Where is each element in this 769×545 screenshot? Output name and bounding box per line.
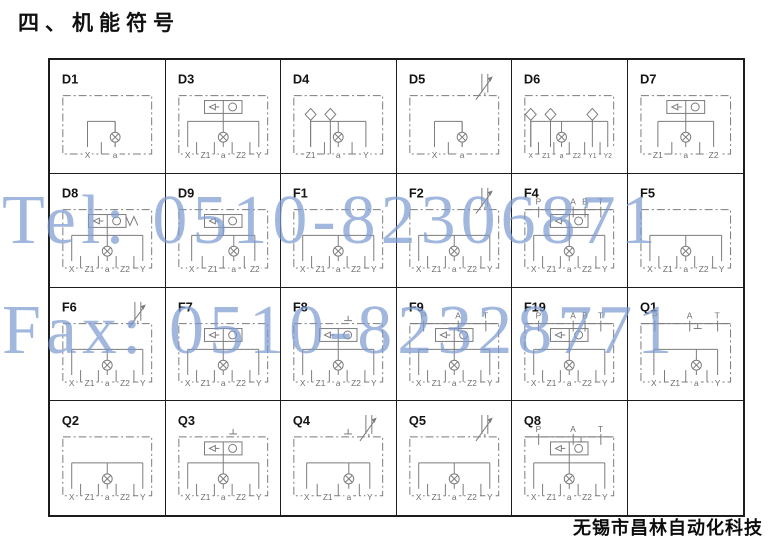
bottom-port-label: Z2 — [249, 264, 259, 274]
bottom-port-label: Z2 — [467, 377, 477, 387]
symbol-cell-D6: D6XZ1aZ2Y1Y2 — [512, 60, 628, 174]
pilot-valve-icon — [319, 328, 357, 349]
schematic-Q2: Q2XZ1aZ2Y — [50, 401, 165, 515]
bottom-port-label: X — [69, 377, 75, 387]
symbol-cell-F7: F7XZ1aZ2Y — [166, 288, 282, 402]
bottom-port-label: Y — [367, 492, 373, 502]
bottom-port-label: a — [336, 377, 341, 387]
symbol-cell-D4: D4Z1aY — [281, 60, 397, 174]
blocked-port-icon — [577, 437, 585, 442]
top-port-label: A — [570, 196, 576, 206]
pilot-valve-icon — [204, 442, 242, 463]
pilot-valve-icon — [88, 214, 137, 235]
schematic-Q8: Q8PATXZ1aZ2Y — [512, 401, 627, 515]
bottom-port-label: Y — [602, 377, 608, 387]
bottom-port-label: X — [531, 377, 537, 387]
bottom-port-label: X — [531, 492, 537, 502]
cell-label: D1 — [62, 72, 78, 87]
bottom-port-label: Z2 — [467, 492, 477, 502]
bottom-port-label: Z1 — [652, 150, 662, 160]
schematic-F4: F4PABTXZ1aZ2Y — [512, 174, 627, 287]
bottom-port-label: X — [415, 492, 421, 502]
bottom-port-label: a — [694, 377, 699, 387]
blocked-port-icon — [344, 429, 352, 434]
symbol-cell-D5: D5Xa — [397, 60, 513, 174]
bottom-port-label: X — [184, 150, 190, 160]
blocked-port-icon — [229, 429, 237, 434]
top-port-label: P — [536, 310, 542, 320]
symbol-cell-Q5: Q5XZ1aZ2Y — [397, 401, 513, 515]
top-port-label: T — [598, 196, 603, 206]
top-port-label: A — [686, 310, 692, 320]
top-port-label: P — [536, 196, 542, 206]
schematic-F2: F2XZ1aZ2Y — [397, 174, 512, 287]
cell-label: F8 — [293, 299, 308, 314]
bottom-port-label: a — [220, 377, 225, 387]
top-port-label: B — [582, 310, 588, 320]
symbol-cell-F5: F5XZ1aZ2Y — [628, 174, 744, 288]
schematic-D8: D8XZ1aZ2Y — [50, 174, 165, 287]
bottom-port-label: Y — [718, 264, 724, 274]
cell-label: D8 — [62, 185, 78, 200]
schematic-D7: D7Z1aZ2 — [628, 60, 744, 173]
symbol-cell-Q1: Q1PATXZ1aY — [628, 288, 744, 402]
bottom-port-label: Y2 — [604, 153, 613, 160]
cell-label: Q5 — [408, 413, 425, 428]
bottom-port-label: Z1 — [200, 150, 210, 160]
schematic-D5: D5Xa — [397, 60, 512, 173]
top-port-label: T — [482, 310, 487, 320]
bottom-port-label: X — [85, 150, 91, 160]
symbol-cell-D8: D8XZ1aZ2Y — [50, 174, 166, 288]
symbol-cell-F4: F4PABTXZ1aZ2Y — [512, 174, 628, 288]
bottom-port-label: Y — [714, 377, 720, 387]
cell-label: Q2 — [62, 413, 79, 428]
symbol-cell-F1: F1XZ1aZ2Y — [281, 174, 397, 288]
top-port-label: T — [714, 310, 719, 320]
schematic-Q3: Q3XZ1aZ2Y — [166, 401, 281, 515]
bottom-port-label: X — [415, 264, 421, 274]
schematic-F8: F8XZ1aZ2Y — [281, 288, 396, 401]
bottom-port-label: Z1 — [200, 492, 210, 502]
bottom-port-label: Y — [486, 377, 492, 387]
pilot-valve-icon — [550, 214, 588, 235]
symbol-cell-F19: F19PABTXZ1aZ2Y — [512, 288, 628, 402]
bottom-port-label: Z2 — [236, 150, 246, 160]
bottom-port-label: Z1 — [200, 377, 210, 387]
pilot-valve-icon — [550, 328, 588, 349]
bottom-port-label: Y — [371, 264, 377, 274]
bottom-port-label: Z1 — [542, 153, 550, 160]
bottom-port-label: Y — [140, 377, 146, 387]
bottom-port-label: a — [105, 377, 110, 387]
symbol-cell-Q8: Q8PATXZ1aZ2Y — [512, 401, 628, 515]
blocked-port-icon — [581, 209, 589, 214]
schematic-D4: D4Z1aY — [281, 60, 396, 173]
bottom-port-label: X — [69, 492, 75, 502]
bottom-port-label: Z2 — [708, 150, 718, 160]
bottom-port-label: Z1 — [662, 264, 672, 274]
bottom-port-label: Z1 — [670, 377, 680, 387]
bottom-port-label: X — [188, 264, 194, 274]
bottom-port-label: a — [105, 264, 110, 274]
top-port-label: T — [598, 310, 603, 320]
check-valve-icon — [545, 108, 556, 120]
company-name: 无锡市昌林自动化科技 — [573, 514, 763, 540]
bottom-port-label: a — [231, 264, 236, 274]
bottom-port-label: X — [184, 377, 190, 387]
bottom-port-label: Y — [363, 150, 369, 160]
cell-label: F7 — [177, 299, 192, 314]
bottom-port-label: Y — [140, 264, 146, 274]
bottom-port-label: a — [567, 377, 572, 387]
bottom-port-label: Z1 — [431, 377, 441, 387]
top-port-label: A — [570, 310, 576, 320]
page-title: 四、机能符号 — [18, 7, 180, 37]
bottom-port-label: a — [451, 492, 456, 502]
schematic-F7: F7XZ1aZ2Y — [166, 288, 281, 401]
bottom-port-label: X — [184, 492, 190, 502]
cell-label: D7 — [639, 72, 656, 87]
pilot-valve-icon — [666, 101, 704, 122]
bottom-port-label: Y — [140, 492, 146, 502]
top-port-label: P — [651, 310, 657, 320]
symbol-cell-D1: D1Xa — [50, 60, 166, 174]
pilot-valve-icon — [204, 101, 242, 122]
top-port-label: T — [598, 424, 603, 434]
bottom-port-label: Z2 — [582, 264, 592, 274]
bottom-port-label: a — [113, 150, 118, 160]
symbol-cell-Q2: Q2XZ1aZ2Y — [50, 401, 166, 515]
bottom-port-label: Z1 — [431, 492, 441, 502]
bottom-port-label: Z1 — [85, 264, 95, 274]
bottom-port-label: Z1 — [547, 492, 557, 502]
schematic-Q1: Q1PATXZ1aY — [628, 288, 744, 401]
bottom-port-label: a — [567, 264, 572, 274]
bottom-port-label: Y — [255, 377, 261, 387]
bottom-port-label: Z1 — [85, 377, 95, 387]
schematic-F5: F5XZ1aZ2Y — [628, 174, 744, 287]
symbol-table: D1XaD3XZ1aZ2YD4Z1aYD5XaD6XZ1aZ2Y1Y2D7Z1a… — [48, 58, 745, 517]
bottom-port-label: Z2 — [467, 264, 477, 274]
bottom-port-label: a — [346, 492, 351, 502]
blocked-port-icon — [693, 323, 701, 328]
bottom-port-label: X — [647, 264, 653, 274]
bottom-port-label: X — [431, 150, 437, 160]
cell-label: Q3 — [177, 413, 194, 428]
bottom-port-label: Y1 — [588, 153, 597, 160]
schematic-F6: F6XZ1aZ2Y — [50, 288, 165, 401]
bottom-port-label: Y — [255, 492, 261, 502]
schematic-D1: D1Xa — [50, 60, 165, 173]
bottom-port-label: a — [683, 264, 688, 274]
bottom-port-label: X — [300, 264, 306, 274]
bottom-port-label: Z2 — [236, 492, 246, 502]
bottom-port-label: Z2 — [698, 264, 708, 274]
bottom-port-label: a — [567, 492, 572, 502]
cell-label: D3 — [177, 72, 193, 87]
cell-label: F6 — [62, 299, 77, 314]
boundary-box — [409, 96, 498, 154]
bottom-port-label: Z1 — [323, 492, 333, 502]
schematic-F9: F9PATXZ1aZ2Y — [397, 288, 512, 401]
bottom-port-label: Z2 — [120, 264, 130, 274]
top-port-label: P — [420, 310, 426, 320]
bottom-port-label: X — [300, 377, 306, 387]
bottom-port-label: Z2 — [236, 377, 246, 387]
catalog-page: 四、机能符号 D1XaD3XZ1aZ2YD4Z1aYD5XaD6XZ1aZ2Y1… — [0, 0, 769, 545]
bottom-port-label: X — [651, 377, 657, 387]
cell-label: D5 — [408, 72, 424, 87]
symbol-cell-D9: D9XZ1aZ2 — [166, 174, 282, 288]
empty-schematic — [628, 401, 744, 515]
bottom-port-label: X — [304, 492, 310, 502]
bottom-port-label: X — [415, 377, 421, 387]
bottom-port-label: a — [336, 264, 341, 274]
symbol-cell-F6: F6XZ1aZ2Y — [50, 288, 166, 402]
bottom-port-label: X — [69, 264, 75, 274]
schematic-D9: D9XZ1aZ2 — [166, 174, 281, 287]
bottom-port-label: Z2 — [351, 377, 361, 387]
bottom-port-label: Y — [371, 377, 377, 387]
symbol-cell-Q4: Q4XZ1aY — [281, 401, 397, 515]
bottom-port-label: a — [683, 150, 688, 160]
bottom-port-label: Y — [486, 264, 492, 274]
bottom-port-label: a — [560, 153, 564, 160]
schematic-F1: F1XZ1aZ2Y — [281, 174, 396, 287]
bottom-port-label: Y — [602, 492, 608, 502]
symbol-cell-F2: F2XZ1aZ2Y — [397, 174, 513, 288]
top-port-label: A — [455, 310, 461, 320]
bottom-port-label: Z2 — [582, 377, 592, 387]
bottom-port-label: Y — [255, 150, 261, 160]
bottom-port-label: X — [531, 264, 537, 274]
bottom-port-label: Z1 — [547, 264, 557, 274]
bottom-port-label: Z2 — [120, 492, 130, 502]
symbol-cell-Q3: Q3XZ1aZ2Y — [166, 401, 282, 515]
bottom-port-label: Z2 — [351, 264, 361, 274]
bottom-port-label: X — [528, 153, 533, 160]
symbol-cell-F8: F8XZ1aZ2Y — [281, 288, 397, 402]
schematic-F19: F19PABTXZ1aZ2Y — [512, 288, 627, 401]
check-valve-icon — [525, 108, 536, 120]
bottom-port-label: Z1 — [207, 264, 217, 274]
bottom-port-label: Z1 — [306, 150, 316, 160]
pilot-valve-icon — [550, 442, 588, 463]
blocked-port-icon — [344, 315, 352, 320]
top-port-label: B — [582, 196, 588, 206]
cell-label: D4 — [293, 72, 310, 87]
schematic-Q4: Q4XZ1aY — [281, 401, 396, 515]
symbol-cell-empty — [628, 401, 744, 515]
cell-label: D6 — [524, 72, 540, 87]
pilot-valve-icon — [204, 328, 242, 349]
pilot-valve-icon — [435, 328, 473, 349]
top-port-label: A — [570, 424, 576, 434]
symbol-cell-D7: D7Z1aZ2 — [628, 60, 744, 174]
bottom-port-label: a — [451, 264, 456, 274]
bottom-port-label: Z2 — [582, 492, 592, 502]
bottom-port-label: Y — [486, 492, 492, 502]
check-valve-icon — [325, 108, 336, 120]
bottom-port-label: Z1 — [316, 264, 326, 274]
bottom-port-label: a — [336, 150, 341, 160]
cell-label: F5 — [639, 186, 654, 201]
bottom-port-label: Z1 — [316, 377, 326, 387]
bottom-port-label: a — [220, 492, 225, 502]
bottom-port-label: a — [451, 377, 456, 387]
top-port-label: P — [536, 424, 542, 434]
schematic-D6: D6XZ1aZ2Y1Y2 — [512, 60, 627, 173]
schematic-D3: D3XZ1aZ2Y — [166, 60, 281, 173]
check-valve-icon — [305, 108, 316, 120]
pilot-valve-icon — [204, 214, 242, 235]
bottom-port-label: Z2 — [120, 377, 130, 387]
bottom-port-label: a — [220, 150, 225, 160]
bottom-port-label: Z1 — [431, 264, 441, 274]
boundary-box — [63, 96, 152, 154]
symbol-cell-F9: F9PATXZ1aZ2Y — [397, 288, 513, 402]
bottom-port-label: a — [105, 492, 110, 502]
cell-label: F1 — [293, 185, 308, 200]
cell-label: D9 — [177, 185, 193, 200]
bottom-port-label: Z2 — [573, 153, 581, 160]
bottom-port-label: Z1 — [85, 492, 95, 502]
check-valve-icon — [587, 108, 598, 120]
cell-label: F2 — [408, 185, 423, 200]
schematic-Q5: Q5XZ1aZ2Y — [397, 401, 512, 515]
bottom-port-label: Z1 — [547, 377, 557, 387]
cell-label: Q4 — [293, 413, 311, 428]
bottom-port-label: a — [459, 150, 464, 160]
bottom-port-label: Y — [602, 264, 608, 274]
symbol-cell-D3: D3XZ1aZ2Y — [166, 60, 282, 174]
